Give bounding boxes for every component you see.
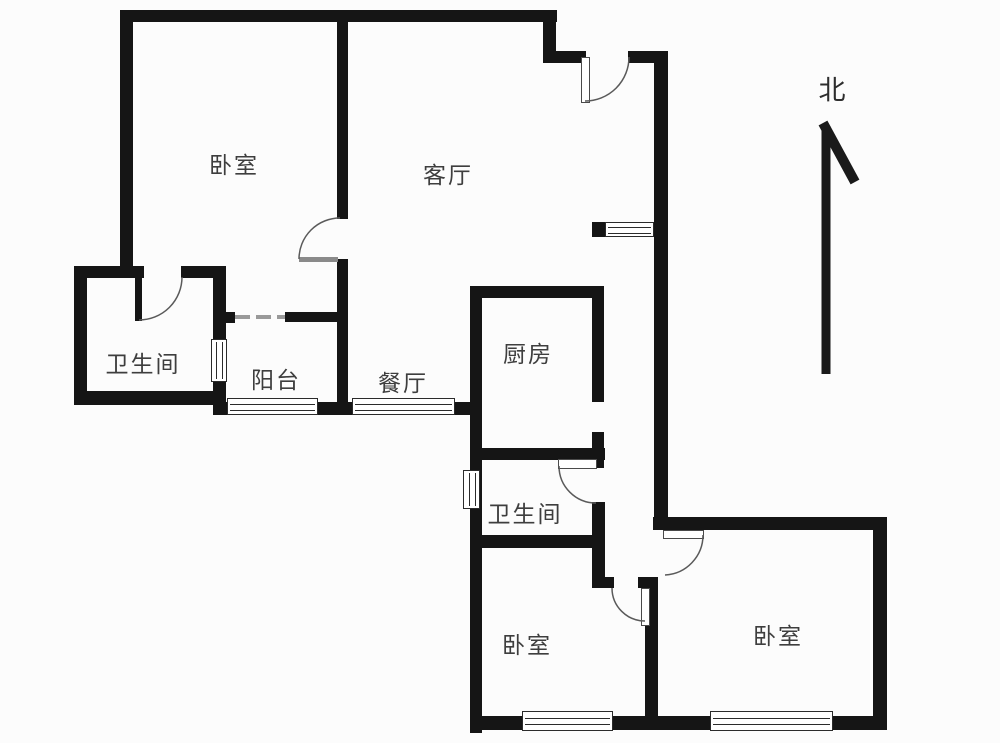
wall-bath1-right-upper	[213, 266, 226, 342]
room-label-bedroom-bottom-middle: 卧室	[502, 626, 552, 660]
north-label: 北	[819, 69, 846, 108]
room-label-kitchen: 厨房	[503, 335, 553, 369]
bedright-door-leaf	[663, 530, 704, 539]
wall-west	[470, 286, 482, 733]
bath1-window	[211, 339, 227, 382]
wall-bedroom1-right-upper	[337, 16, 348, 219]
room-label-dining-room: 餐厅	[378, 364, 428, 398]
entry-door-arc	[585, 57, 629, 101]
hallway-interior-window	[605, 222, 654, 237]
entry-door-leaf	[581, 57, 590, 103]
bath1-door-leaf	[135, 276, 142, 321]
room-label-balcony: 阳台	[251, 361, 301, 395]
wall-interior-window-cap	[592, 222, 605, 237]
wall-kitchen-right-upper	[592, 286, 604, 402]
wall-entry-step	[543, 10, 556, 63]
room-label-bathroom-middle: 卫生间	[488, 495, 563, 529]
dining-window	[352, 398, 455, 415]
north-arrow-barb	[823, 123, 855, 182]
room-label-bathroom-left: 卫生间	[106, 345, 181, 379]
bedroom1-door-leaf	[299, 257, 338, 262]
wall-kitchen-top	[470, 286, 604, 298]
wall-balcony-stub	[225, 312, 235, 323]
bath2-door-leaf	[558, 459, 597, 469]
wall-bath2-bottom	[470, 535, 605, 548]
wall-bedright-right	[873, 517, 887, 730]
room-label-living-room: 客厅	[423, 156, 473, 190]
wall-vestibule-nib	[605, 577, 614, 588]
floor-plan: 卧室 客厅 卫生间 阳台 餐厅 厨房 卫生间 卧室 卧室 北	[0, 0, 1000, 743]
bedright-window	[710, 711, 833, 731]
wall-bath1-bottom	[74, 391, 225, 405]
wall-bedroom1-left	[120, 10, 133, 268]
wall-balcony-divider	[285, 312, 337, 322]
wall-bedroom1-right-lower	[337, 259, 348, 405]
bath2-window	[463, 470, 480, 509]
bedmid-door-leaf	[641, 588, 650, 626]
bedright-door-arc	[665, 535, 703, 575]
bath2-door-arc	[559, 466, 596, 503]
wall-living-right	[654, 51, 668, 530]
bath1-door-arc	[139, 277, 182, 320]
bedmid-window	[522, 711, 613, 731]
room-label-bedroom-bottom-right: 卧室	[753, 617, 803, 651]
balcony-opening-dashed-line	[235, 315, 285, 319]
wall-bedroom-divider-top	[638, 577, 658, 588]
balcony-window	[227, 398, 318, 415]
wall-bath1-left	[74, 266, 87, 405]
wall-bedright-top	[653, 517, 887, 530]
room-label-bedroom-top-left: 卧室	[209, 146, 259, 180]
bedroom1-door-arc	[299, 218, 340, 259]
